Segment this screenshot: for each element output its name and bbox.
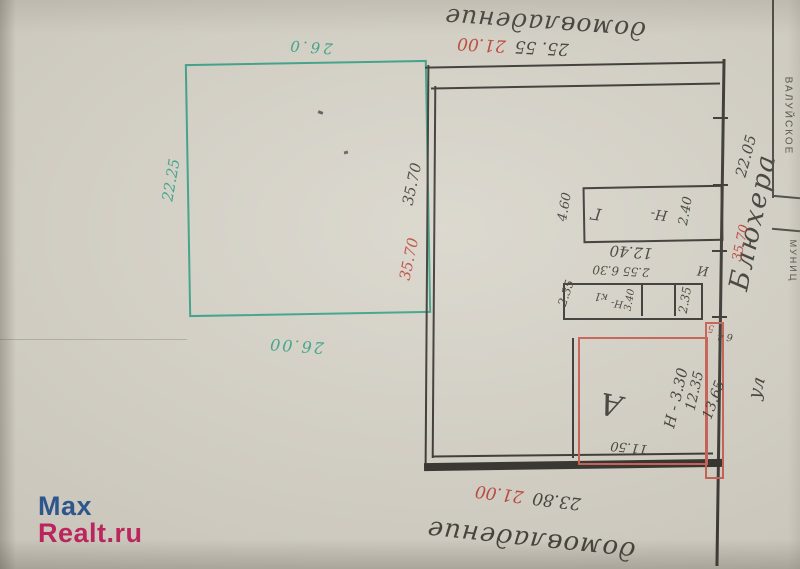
dim-green-bottom: 26.00 [267, 335, 324, 358]
teal-plot-outline [185, 60, 431, 317]
garage-height-label: Н- [650, 205, 669, 223]
fence-tick [713, 117, 728, 119]
shed-top-dims: 2.55 6.30 [592, 263, 650, 280]
dim-green-left: 22.25 [158, 157, 183, 202]
shed-height-label: Н- [610, 297, 624, 310]
dim-bottom-black: 23.80 [531, 488, 582, 514]
dim-green-top: 26.0 [287, 36, 334, 57]
stamp-frame-hline [772, 228, 800, 232]
fence-tick [712, 316, 727, 318]
house-left-line-black [572, 338, 574, 458]
survey-tick-black: 6 4 [717, 330, 734, 342]
garage-length-label: 12.40 [609, 242, 653, 263]
dim-top-red: 21.00 [457, 33, 507, 56]
bottom-estate-label: домовладение [425, 514, 637, 566]
stamp-frame-hline [772, 195, 800, 199]
garage-width-label: 4.60 [555, 191, 575, 222]
plot-top-line-inner [431, 82, 720, 89]
plot-right-line [715, 59, 725, 566]
survey-tick-red: 5 [707, 322, 714, 334]
bottom-dimensions: 23.80 21.00 [474, 481, 582, 514]
dim-top-black: 25. 55 [514, 36, 569, 59]
fence-tick [712, 250, 727, 252]
plot-top-line-outer [425, 61, 723, 68]
plot-left-line-inner [432, 86, 437, 458]
watermark-logo: Max Realt.ru [38, 493, 143, 547]
dim-bottom-red: 21.00 [474, 481, 525, 507]
stamp-text-line2: МУНИЦ [788, 240, 798, 283]
stamp-frame-vline [772, 0, 774, 198]
watermark-logo-line2: Realt.ru [38, 520, 143, 547]
scanned-plan-photo: домовладение 25. 55 21.00 26.0 22.25 26.… [0, 0, 800, 569]
shed-mark-letter: И [697, 262, 710, 278]
shed-divider [641, 284, 643, 316]
watermark-logo-line1: Max [38, 493, 143, 520]
street-prefix-label: ул [744, 375, 770, 402]
paper-crease-line [0, 339, 187, 340]
shed-letter-label: к1 [593, 290, 608, 305]
stamp-text-line1: ВАЛУЙСКОЕ [783, 77, 794, 156]
